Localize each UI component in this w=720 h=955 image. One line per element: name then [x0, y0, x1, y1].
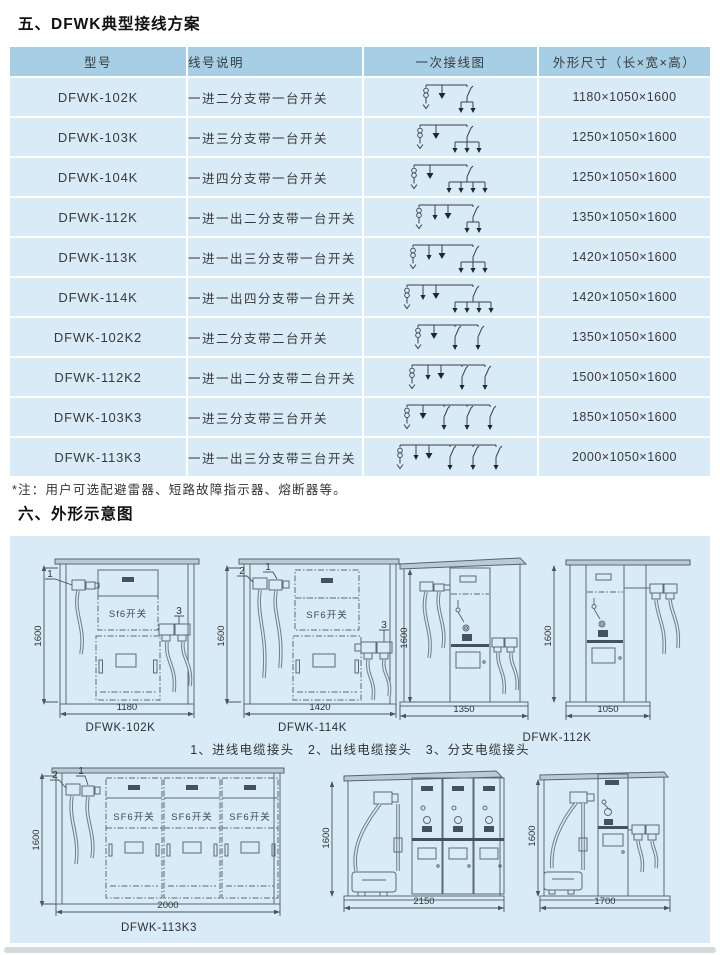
wiring-diagram [407, 198, 494, 236]
wiring-diagram [400, 358, 502, 396]
height-dimension: 1600 [33, 565, 58, 705]
table-row: DFWK-113K3一进一出三分支带三台开关2000×1050×1600 [10, 437, 710, 476]
dimensions-cell: 1500×1050×1600 [538, 357, 710, 397]
wiring-diagram-cell [363, 77, 538, 117]
width-dimension: 2000 [56, 900, 280, 916]
incoming-cable-connectors [253, 578, 289, 678]
line-desc-cell: 一进四分支带一台开关 [187, 157, 363, 197]
callout-label: 2 [239, 566, 245, 577]
dimensions-cell: 1350×1050×1600 [538, 317, 710, 357]
line-desc-cell: 一进一出三分支带一台开关 [187, 237, 363, 277]
drawing-1350-view: 1600 [398, 550, 533, 728]
height-dimension: 1600 [543, 565, 556, 703]
callout-label: 1 [47, 569, 53, 580]
drawing-dfwk-113k3: 1600 SF6开关 SF6开关 [28, 764, 290, 920]
model-cell: DFWK-104K [10, 157, 187, 197]
column-header: 型号 [10, 47, 187, 77]
wiring-diagram-cell [363, 437, 538, 476]
width-dim-label: 1420 [309, 702, 330, 713]
cabinet-body [540, 772, 670, 900]
height-dim-label: 1600 [399, 627, 410, 648]
branch-cable-connectors [624, 584, 678, 654]
model-cell: DFWK-103K3 [10, 397, 187, 437]
callout-legend: 1、进线电缆接头 2、出线电缆接头 3、分支电缆接头 [10, 739, 710, 758]
section6-title: 六、外形示意图 [18, 502, 134, 524]
dimensions-cell: 1420×1050×1600 [538, 277, 710, 317]
wiring-diagram [401, 238, 500, 276]
callout-2: 2 [237, 566, 253, 582]
wiring-diagram-cell [363, 397, 538, 437]
table-row: DFWK-103K3一进三分支带三台开关1850×1050×1600 [10, 397, 710, 437]
section5-title: 五、DFWK典型接线方案 [18, 12, 201, 34]
height-dimension: 1600 [31, 773, 56, 907]
wiring-diagram [406, 318, 495, 356]
branch-cable-connectors [159, 624, 190, 692]
table-row: DFWK-102K一进二分支带一台开关1180×1050×1600 [10, 77, 710, 117]
model-cell: DFWK-112K2 [10, 357, 187, 397]
incoming-cable-assembly [552, 792, 594, 870]
wiring-diagram-cell [363, 157, 538, 197]
switch-bays [412, 778, 504, 894]
dimensions-cell: 1350×1050×1600 [538, 197, 710, 237]
table-header-row: 型号线号说明一次接线图外形尺寸（长×宽×高） [10, 47, 710, 77]
wiring-diagram-cell [363, 277, 538, 317]
table-row: DFWK-103K一进三分支带一台开关1250×1050×1600 [10, 117, 710, 157]
drawing-dfwk-102k: 1600 Sf6开关 [28, 552, 213, 718]
callout-3: 3 [174, 606, 184, 624]
column-header: 一次接线图 [363, 47, 538, 77]
height-dim-label: 1600 [527, 825, 538, 846]
height-dimension: 1600 [216, 565, 241, 705]
wiring-diagram [388, 438, 513, 476]
height-dim-label: 1600 [216, 625, 227, 646]
wiring-diagram [414, 78, 488, 116]
model-cell: DFWK-102K [10, 77, 187, 117]
width-dim-label: 1050 [597, 704, 618, 715]
cabinet-body [400, 558, 528, 706]
dimensions-cell: 2000×1050×1600 [538, 437, 710, 476]
height-dim-label: 1600 [33, 625, 44, 646]
switch-panel-2: SF6开关 [164, 778, 220, 898]
width-dim-label: 1350 [453, 704, 474, 715]
line-desc-cell: 一进二分支带二台开关 [187, 317, 363, 357]
line-desc-cell: 一进一出二分支带二台开关 [187, 357, 363, 397]
table-row: DFWK-112K2一进一出二分支带二台开关1500×1050×1600 [10, 357, 710, 397]
drawing-model-label: DFWK-114K [215, 722, 410, 734]
line-desc-cell: 一进三分支带三台开关 [187, 397, 363, 437]
wiring-diagram-cell [363, 237, 538, 277]
height-dimension: 1600 [321, 781, 334, 897]
table-row: DFWK-102K2一进二分支带二台开关1350×1050×1600 [10, 317, 710, 357]
drawing-2150-view: 1600 [322, 768, 507, 918]
height-dim-label: 1600 [31, 829, 42, 850]
catalog-page: 五、DFWK典型接线方案 型号线号说明一次接线图外形尺寸（长×宽×高） DFWK… [0, 0, 720, 955]
unit-label: SF6开关 [306, 609, 347, 621]
wiring-diagram [408, 118, 494, 156]
page-bottom-edge [4, 947, 716, 953]
height-dimension: 1600 [399, 569, 412, 703]
switch-panel-1: SF6开关 [106, 778, 162, 898]
line-desc-cell: 一进一出四分支带一台开关 [187, 277, 363, 317]
dimensions-cell: 1250×1050×1600 [538, 157, 710, 197]
note: *注：用户可选配避雷器、短路故障指示器、熔断器等。 [12, 479, 347, 498]
wiring-diagram [395, 278, 506, 316]
table-body: DFWK-102K一进二分支带一台开关1180×1050×1600DFWK-10… [10, 77, 710, 476]
model-cell: DFWK-102K2 [10, 317, 187, 357]
callout-1: 1 [263, 562, 277, 579]
drawing-model-label: DFWK-102K [28, 722, 213, 734]
width-dim-label: 2000 [157, 900, 178, 911]
model-cell: DFWK-112K [10, 197, 187, 237]
width-dimension: 2150 [344, 896, 504, 912]
unit-label: SF6开关 [113, 811, 154, 823]
cable-terminal-device [352, 872, 396, 896]
incoming-cable-connectors [66, 784, 100, 864]
dimensions-cell: 1850×1050×1600 [538, 397, 710, 437]
callout-3: 3 [379, 620, 389, 642]
cabinet-body [566, 560, 690, 706]
model-cell: DFWK-103K [10, 117, 187, 157]
dimensions-cell: 1250×1050×1600 [538, 117, 710, 157]
branch-cable-connectors [628, 825, 659, 872]
unit-label: SF6开关 [171, 811, 212, 823]
table-row: DFWK-112K一进一出二分支带一台开关1350×1050×1600 [10, 197, 710, 237]
wiring-diagram-cell [363, 357, 538, 397]
wiring-diagram-cell [363, 197, 538, 237]
drawing-dfwk-112k-side: 1600 1050 [542, 550, 694, 728]
unit-label: Sf6开关 [109, 608, 147, 620]
drawing-model-label: DFWK-113K3 [28, 922, 290, 934]
height-dimension: 1600 [527, 779, 540, 897]
callout-label: 3 [381, 620, 387, 631]
callout-label: 1 [78, 766, 84, 777]
incoming-cable-connectors [420, 582, 450, 658]
column-header: 外形尺寸（长×宽×高） [538, 47, 710, 77]
wiring-diagram [395, 398, 507, 436]
branch-cable-connectors [492, 638, 517, 694]
width-dim-label: 1180 [117, 702, 137, 713]
model-cell: DFWK-113K3 [10, 437, 187, 476]
line-desc-cell: 一进一出二分支带一台开关 [187, 197, 363, 237]
callout-1: 1 [45, 569, 72, 585]
width-dim-label: 2150 [413, 896, 434, 907]
callout-label: 3 [176, 606, 182, 617]
model-cell: DFWK-114K [10, 277, 187, 317]
line-desc-cell: 一进三分支带一台开关 [187, 117, 363, 157]
dimensions-cell: 1180×1050×1600 [538, 77, 710, 117]
table-row: DFWK-114K一进一出四分支带一台开关1420×1050×1600 [10, 277, 710, 317]
height-dim-label: 1600 [321, 827, 332, 848]
spec-table: 型号线号说明一次接线图外形尺寸（长×宽×高） DFWK-102K一进二分支带一台… [10, 47, 710, 476]
line-desc-cell: 一进二分支带一台开关 [187, 77, 363, 117]
wiring-diagram-cell [363, 117, 538, 157]
dimensions-cell: 1420×1050×1600 [538, 237, 710, 277]
incoming-cable-assembly [355, 792, 402, 871]
width-dim-label: 1700 [594, 896, 615, 907]
line-desc-cell: 一进一出三分支带三台开关 [187, 437, 363, 476]
model-cell: DFWK-113K [10, 237, 187, 277]
cabinet-body [55, 559, 199, 704]
table-row: DFWK-113K一进一出三分支带一台开关1420×1050×1600 [10, 237, 710, 277]
wiring-diagram-cell [363, 317, 538, 357]
wiring-diagram [402, 158, 500, 196]
width-dimension: 1700 [540, 896, 670, 912]
drawing-dfwk-114k: 1600 SF6开关 [215, 552, 410, 718]
callout-label: 2 [52, 770, 58, 781]
unit-label: SF6开关 [229, 811, 270, 823]
column-header: 线号说明 [187, 47, 363, 77]
height-dim-label: 1600 [543, 625, 554, 646]
switch-panel-3: SF6开关 [222, 778, 278, 898]
outline-panel: 1600 Sf6开关 [10, 536, 710, 943]
table-row: DFWK-104K一进四分支带一台开关1250×1050×1600 [10, 157, 710, 197]
callout-label: 1 [265, 562, 271, 573]
incoming-cable-connector [72, 580, 99, 654]
cable-terminal-device [544, 872, 582, 894]
drawing-1700-view: 1600 [526, 768, 680, 918]
